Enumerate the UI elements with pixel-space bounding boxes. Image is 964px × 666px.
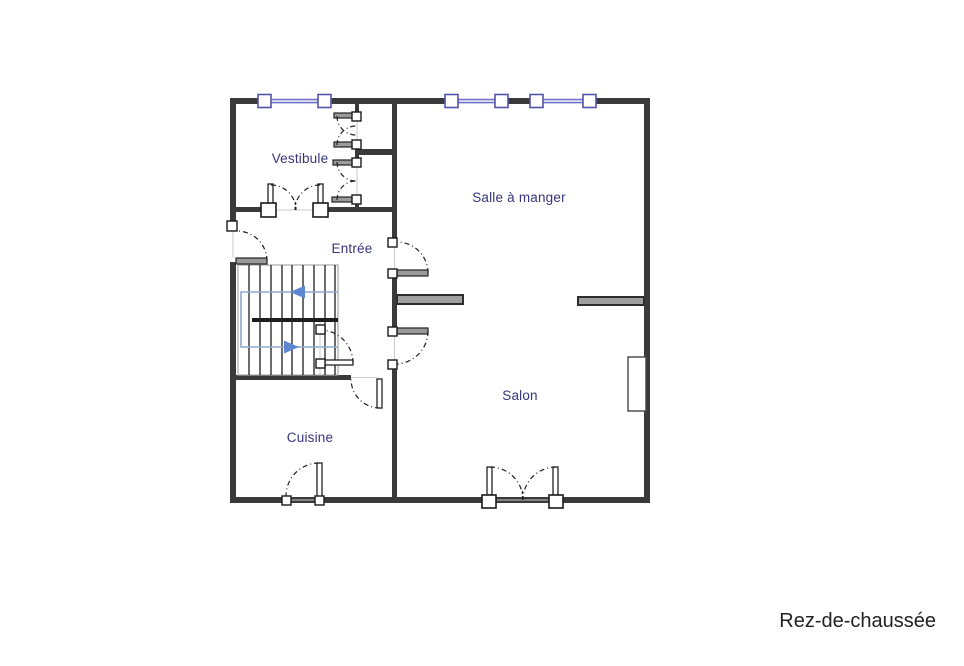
door-swing-icon	[237, 231, 267, 261]
wall-stub-left	[397, 295, 463, 304]
door-leaf	[236, 258, 267, 264]
door-swing-icon	[397, 331, 428, 364]
closet-door-upper	[334, 112, 361, 149]
door-leaf	[377, 379, 382, 408]
door-swing-icon	[351, 379, 380, 408]
dining-room-door	[388, 238, 428, 278]
wall-central-upper	[392, 104, 397, 240]
floor-plan-page: Vestibule Salle à manger Entrée Salon Cu…	[0, 0, 964, 666]
room-label-salon: Salon	[502, 388, 538, 403]
floor-plan-drawing: Vestibule Salle à manger Entrée Salon Cu…	[0, 0, 964, 666]
window-end-icon	[530, 95, 543, 108]
kitchen-door	[351, 378, 382, 409]
door-jamb-icon	[227, 221, 237, 231]
door-jamb-icon	[316, 325, 325, 334]
window-end-icon	[495, 95, 508, 108]
entrance-door	[227, 221, 267, 264]
window-end-icon	[445, 95, 458, 108]
door-leaf	[553, 467, 558, 495]
door-leaf	[487, 467, 492, 495]
door-jamb-icon	[316, 359, 325, 368]
door-jamb-icon	[388, 360, 397, 369]
door-jamb-icon	[352, 112, 361, 121]
door-leaf	[332, 197, 352, 202]
wall-cuisine-top	[236, 375, 351, 380]
floor-title: Rez-de-chaussée	[779, 610, 936, 632]
door-leaf	[317, 463, 322, 497]
door-jamb-icon	[388, 269, 397, 278]
room-label-cuisine: Cuisine	[287, 430, 333, 445]
door-jamb-icon	[388, 238, 397, 247]
living-room-door	[388, 327, 428, 369]
fireplace-icon	[628, 357, 646, 411]
wall-vestibule-bottom-left	[236, 207, 264, 212]
room-label-salle-a-manger: Salle à manger	[472, 190, 566, 205]
door-swing-icon	[397, 242, 428, 273]
door-leaf	[397, 270, 428, 276]
door-leaf	[325, 360, 353, 365]
door-jamb-icon	[388, 327, 397, 336]
door-leaf	[397, 328, 428, 334]
wall-strip-seg	[355, 104, 359, 112]
wall-left-upper	[230, 98, 236, 226]
door-jamb-icon	[549, 495, 563, 508]
door-jamb-icon	[352, 195, 361, 204]
window	[530, 95, 596, 108]
door-leaf	[333, 160, 353, 165]
wall-left-lower	[230, 262, 236, 503]
stair-landing-divider	[252, 318, 338, 322]
door-jamb-icon	[261, 203, 276, 217]
door-jamb-icon	[282, 496, 291, 505]
closet-door-lower	[332, 158, 361, 204]
door-jamb-icon	[352, 158, 361, 167]
door-swing-icon	[286, 463, 319, 496]
window-end-icon	[583, 95, 596, 108]
window-end-icon	[258, 95, 271, 108]
door-jamb-icon	[352, 140, 361, 149]
vestibule-double-door	[261, 184, 328, 217]
wall-closet-divider	[359, 149, 392, 155]
door-jamb-icon	[482, 495, 496, 508]
wall-central-lower	[392, 366, 397, 497]
wall-stub-right	[578, 297, 644, 305]
wall-vestibule-bottom-right	[327, 207, 392, 212]
window	[258, 95, 331, 108]
window	[445, 95, 508, 108]
room-label-vestibule: Vestibule	[272, 151, 329, 166]
door-jamb-icon	[315, 496, 324, 505]
room-label-entree: Entrée	[332, 241, 373, 256]
window-end-icon	[318, 95, 331, 108]
door-jamb-icon	[313, 203, 328, 217]
